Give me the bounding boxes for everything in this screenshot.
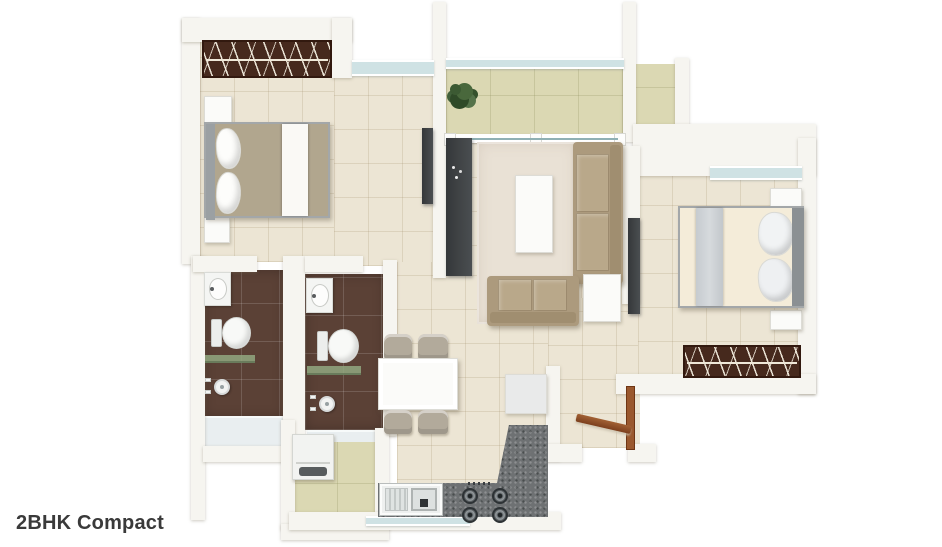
burner — [492, 507, 508, 523]
glass-shelf — [307, 366, 361, 375]
glass-shelf — [205, 355, 255, 363]
window — [352, 60, 434, 76]
nightstand — [770, 310, 802, 330]
nightstand — [204, 217, 230, 243]
refrigerator — [505, 374, 547, 414]
shower-knob — [310, 395, 316, 399]
wall — [182, 18, 200, 264]
floor-plan: 2BHK Compact — [0, 0, 942, 547]
shower-area-1 — [203, 416, 285, 446]
double-bed — [678, 206, 804, 308]
toilet — [317, 330, 359, 362]
burner — [462, 488, 478, 504]
dining-table — [378, 358, 458, 410]
headboard — [792, 208, 804, 306]
wall — [623, 2, 636, 142]
sofa-backrest — [610, 145, 621, 281]
toilet-tank — [317, 331, 328, 361]
drainboard — [385, 488, 408, 511]
plan-title: 2BHK Compact — [16, 512, 164, 535]
wall — [203, 446, 293, 462]
service-window — [366, 516, 470, 526]
headboard — [206, 124, 215, 220]
toilet-tank — [211, 319, 222, 347]
gas-stove — [462, 488, 506, 518]
burner — [492, 488, 508, 504]
shower-knob — [310, 407, 316, 411]
wall — [193, 256, 257, 272]
shower-knob — [205, 390, 211, 394]
washing-machine — [292, 434, 334, 480]
washbasin — [306, 278, 333, 313]
dining-chair — [418, 410, 448, 434]
pillow — [757, 257, 796, 303]
shower-head — [214, 379, 230, 395]
knob — [478, 482, 480, 485]
decor-items — [452, 166, 455, 169]
tv-unit — [446, 138, 472, 276]
burner — [462, 507, 478, 523]
knob — [473, 482, 475, 485]
wall — [332, 18, 352, 78]
knob — [468, 482, 470, 485]
bed-runner — [282, 124, 308, 216]
washer-line — [296, 462, 330, 464]
sofa-cushion — [533, 279, 567, 311]
knob — [488, 482, 490, 485]
shower-head — [319, 396, 335, 412]
shower-knob — [205, 378, 211, 382]
sofa-cushion — [576, 213, 609, 271]
wall — [191, 256, 205, 520]
pillow — [215, 127, 242, 169]
wall — [283, 256, 305, 440]
balcony-railing — [446, 58, 624, 69]
window — [710, 166, 802, 180]
double-bed — [204, 122, 330, 218]
kitchen-sink — [380, 484, 442, 515]
knob — [483, 482, 485, 485]
coffee-table — [515, 175, 553, 253]
pillow — [215, 171, 243, 215]
balcony-extension — [635, 64, 677, 132]
sink-basin — [411, 488, 437, 511]
dining-chair — [384, 410, 412, 434]
wardrobe — [683, 345, 801, 378]
wall — [182, 18, 352, 42]
sofa-2-seater — [487, 276, 579, 326]
tv-panel — [628, 218, 640, 314]
washer-door — [299, 467, 327, 477]
plant-icon — [450, 84, 461, 95]
wall — [305, 256, 363, 272]
sofa-3-seater — [573, 142, 623, 284]
stove-knobs — [468, 482, 496, 486]
toilet-bowl — [222, 317, 251, 349]
bed-runner — [696, 208, 723, 306]
door-frame — [626, 386, 635, 450]
sofa-backrest — [490, 312, 576, 323]
dining-chair — [418, 334, 448, 360]
pillow — [757, 211, 795, 257]
washbasin — [204, 272, 231, 306]
toilet — [211, 318, 251, 348]
nightstand — [204, 96, 232, 123]
sofa-cushion — [576, 154, 609, 212]
side-table — [583, 274, 621, 322]
room-balcony — [446, 66, 624, 140]
console-shelf — [422, 128, 433, 204]
nightstand — [770, 188, 802, 208]
toilet-bowl — [328, 329, 359, 363]
sofa-cushion — [498, 279, 532, 311]
wall — [544, 444, 582, 462]
tap — [312, 294, 316, 298]
dining-chair — [384, 334, 412, 360]
wardrobe — [202, 40, 332, 78]
